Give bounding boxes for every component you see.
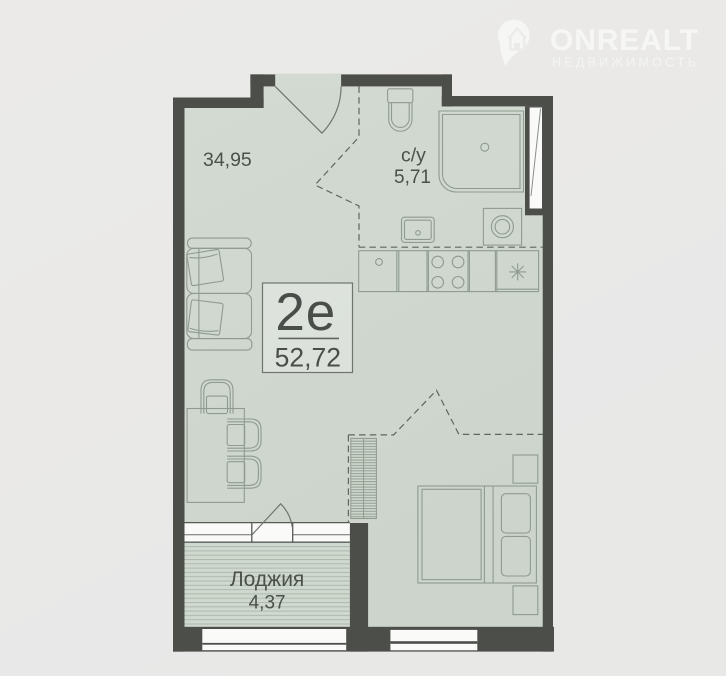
svg-text:34,95: 34,95 [203, 149, 252, 171]
svg-text:5,71: 5,71 [394, 167, 431, 188]
svg-text:НЕДВИЖИМОСТЬ: НЕДВИЖИМОСТЬ [552, 56, 700, 70]
svg-text:4,37: 4,37 [249, 593, 286, 614]
svg-text:2е: 2е [275, 283, 336, 342]
svg-text:52,72: 52,72 [275, 342, 341, 372]
svg-text:ONREALT: ONREALT [550, 24, 700, 57]
svg-text:Лоджия: Лоджия [230, 568, 304, 591]
svg-text:с/у: с/у [401, 145, 426, 167]
